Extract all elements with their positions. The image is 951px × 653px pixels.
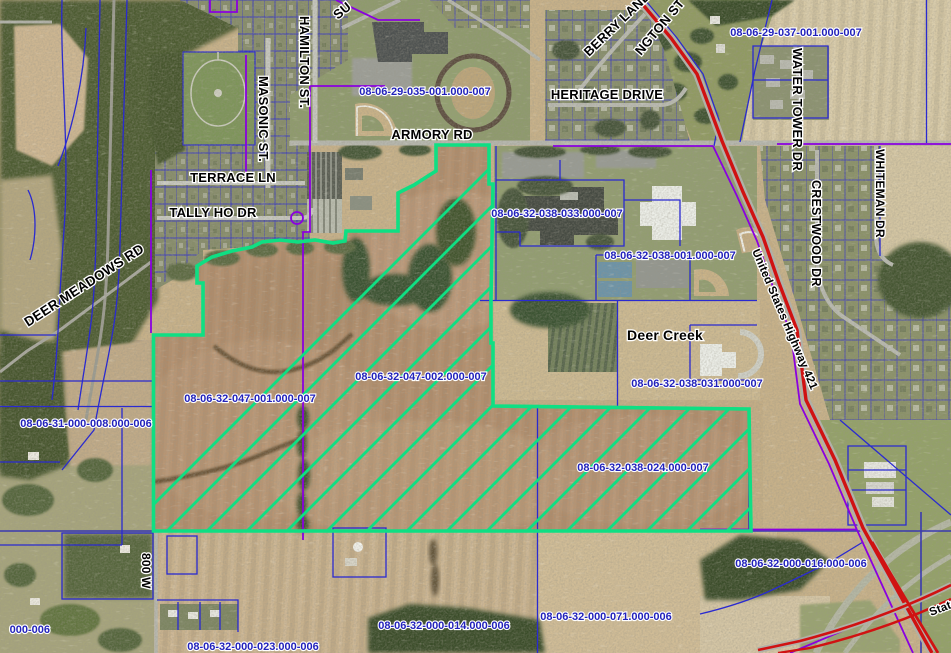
svg-text:000-006: 000-006 bbox=[10, 624, 50, 636]
svg-text:08-06-32-038-031.000-007: 08-06-32-038-031.000-007 bbox=[631, 378, 763, 390]
svg-text:WATER TOWER DR: WATER TOWER DR bbox=[790, 48, 805, 171]
svg-text:08-06-32-000-016.000-006: 08-06-32-000-016.000-006 bbox=[735, 558, 867, 570]
svg-text:08-06-29-035-001.000-007: 08-06-29-035-001.000-007 bbox=[359, 86, 491, 98]
svg-text:08-06-32-000-071.000-006: 08-06-32-000-071.000-006 bbox=[540, 611, 672, 623]
svg-text:08-06-32-000-023.000-006: 08-06-32-000-023.000-006 bbox=[187, 641, 319, 653]
svg-text:MASONIC ST.: MASONIC ST. bbox=[256, 76, 271, 162]
svg-text:08-06-32-047-002.000-007: 08-06-32-047-002.000-007 bbox=[355, 371, 487, 383]
svg-text:HAMILTON ST.: HAMILTON ST. bbox=[297, 16, 312, 108]
svg-text:WHITEMAN DR: WHITEMAN DR bbox=[873, 149, 887, 238]
svg-text:ARMORY RD: ARMORY RD bbox=[391, 127, 472, 142]
svg-text:08-06-32-038-033.000-007: 08-06-32-038-033.000-007 bbox=[491, 208, 623, 220]
svg-text:08-06-32-038-024.000-007: 08-06-32-038-024.000-007 bbox=[577, 462, 709, 474]
svg-text:Deer Creek: Deer Creek bbox=[627, 327, 703, 343]
svg-text:HERITAGE DRIVE: HERITAGE DRIVE bbox=[551, 87, 663, 102]
svg-text:08-06-32-038-001.000-007: 08-06-32-038-001.000-007 bbox=[604, 250, 736, 262]
svg-text:08-06-31-000-008.000-006: 08-06-31-000-008.000-006 bbox=[20, 418, 152, 430]
svg-text:800 W: 800 W bbox=[139, 553, 153, 589]
svg-text:08-06-32-047-001.000-007: 08-06-32-047-001.000-007 bbox=[184, 393, 316, 405]
svg-text:08-06-29-037-001.000-007: 08-06-29-037-001.000-007 bbox=[730, 27, 862, 39]
svg-text:TALLY HO DR: TALLY HO DR bbox=[169, 205, 257, 220]
svg-text:TERRACE LN: TERRACE LN bbox=[190, 170, 276, 185]
svg-text:CRESTWOOD DR: CRESTWOOD DR bbox=[809, 180, 823, 287]
svg-text:08-06-32-000-014.000-006: 08-06-32-000-014.000-006 bbox=[378, 620, 510, 632]
